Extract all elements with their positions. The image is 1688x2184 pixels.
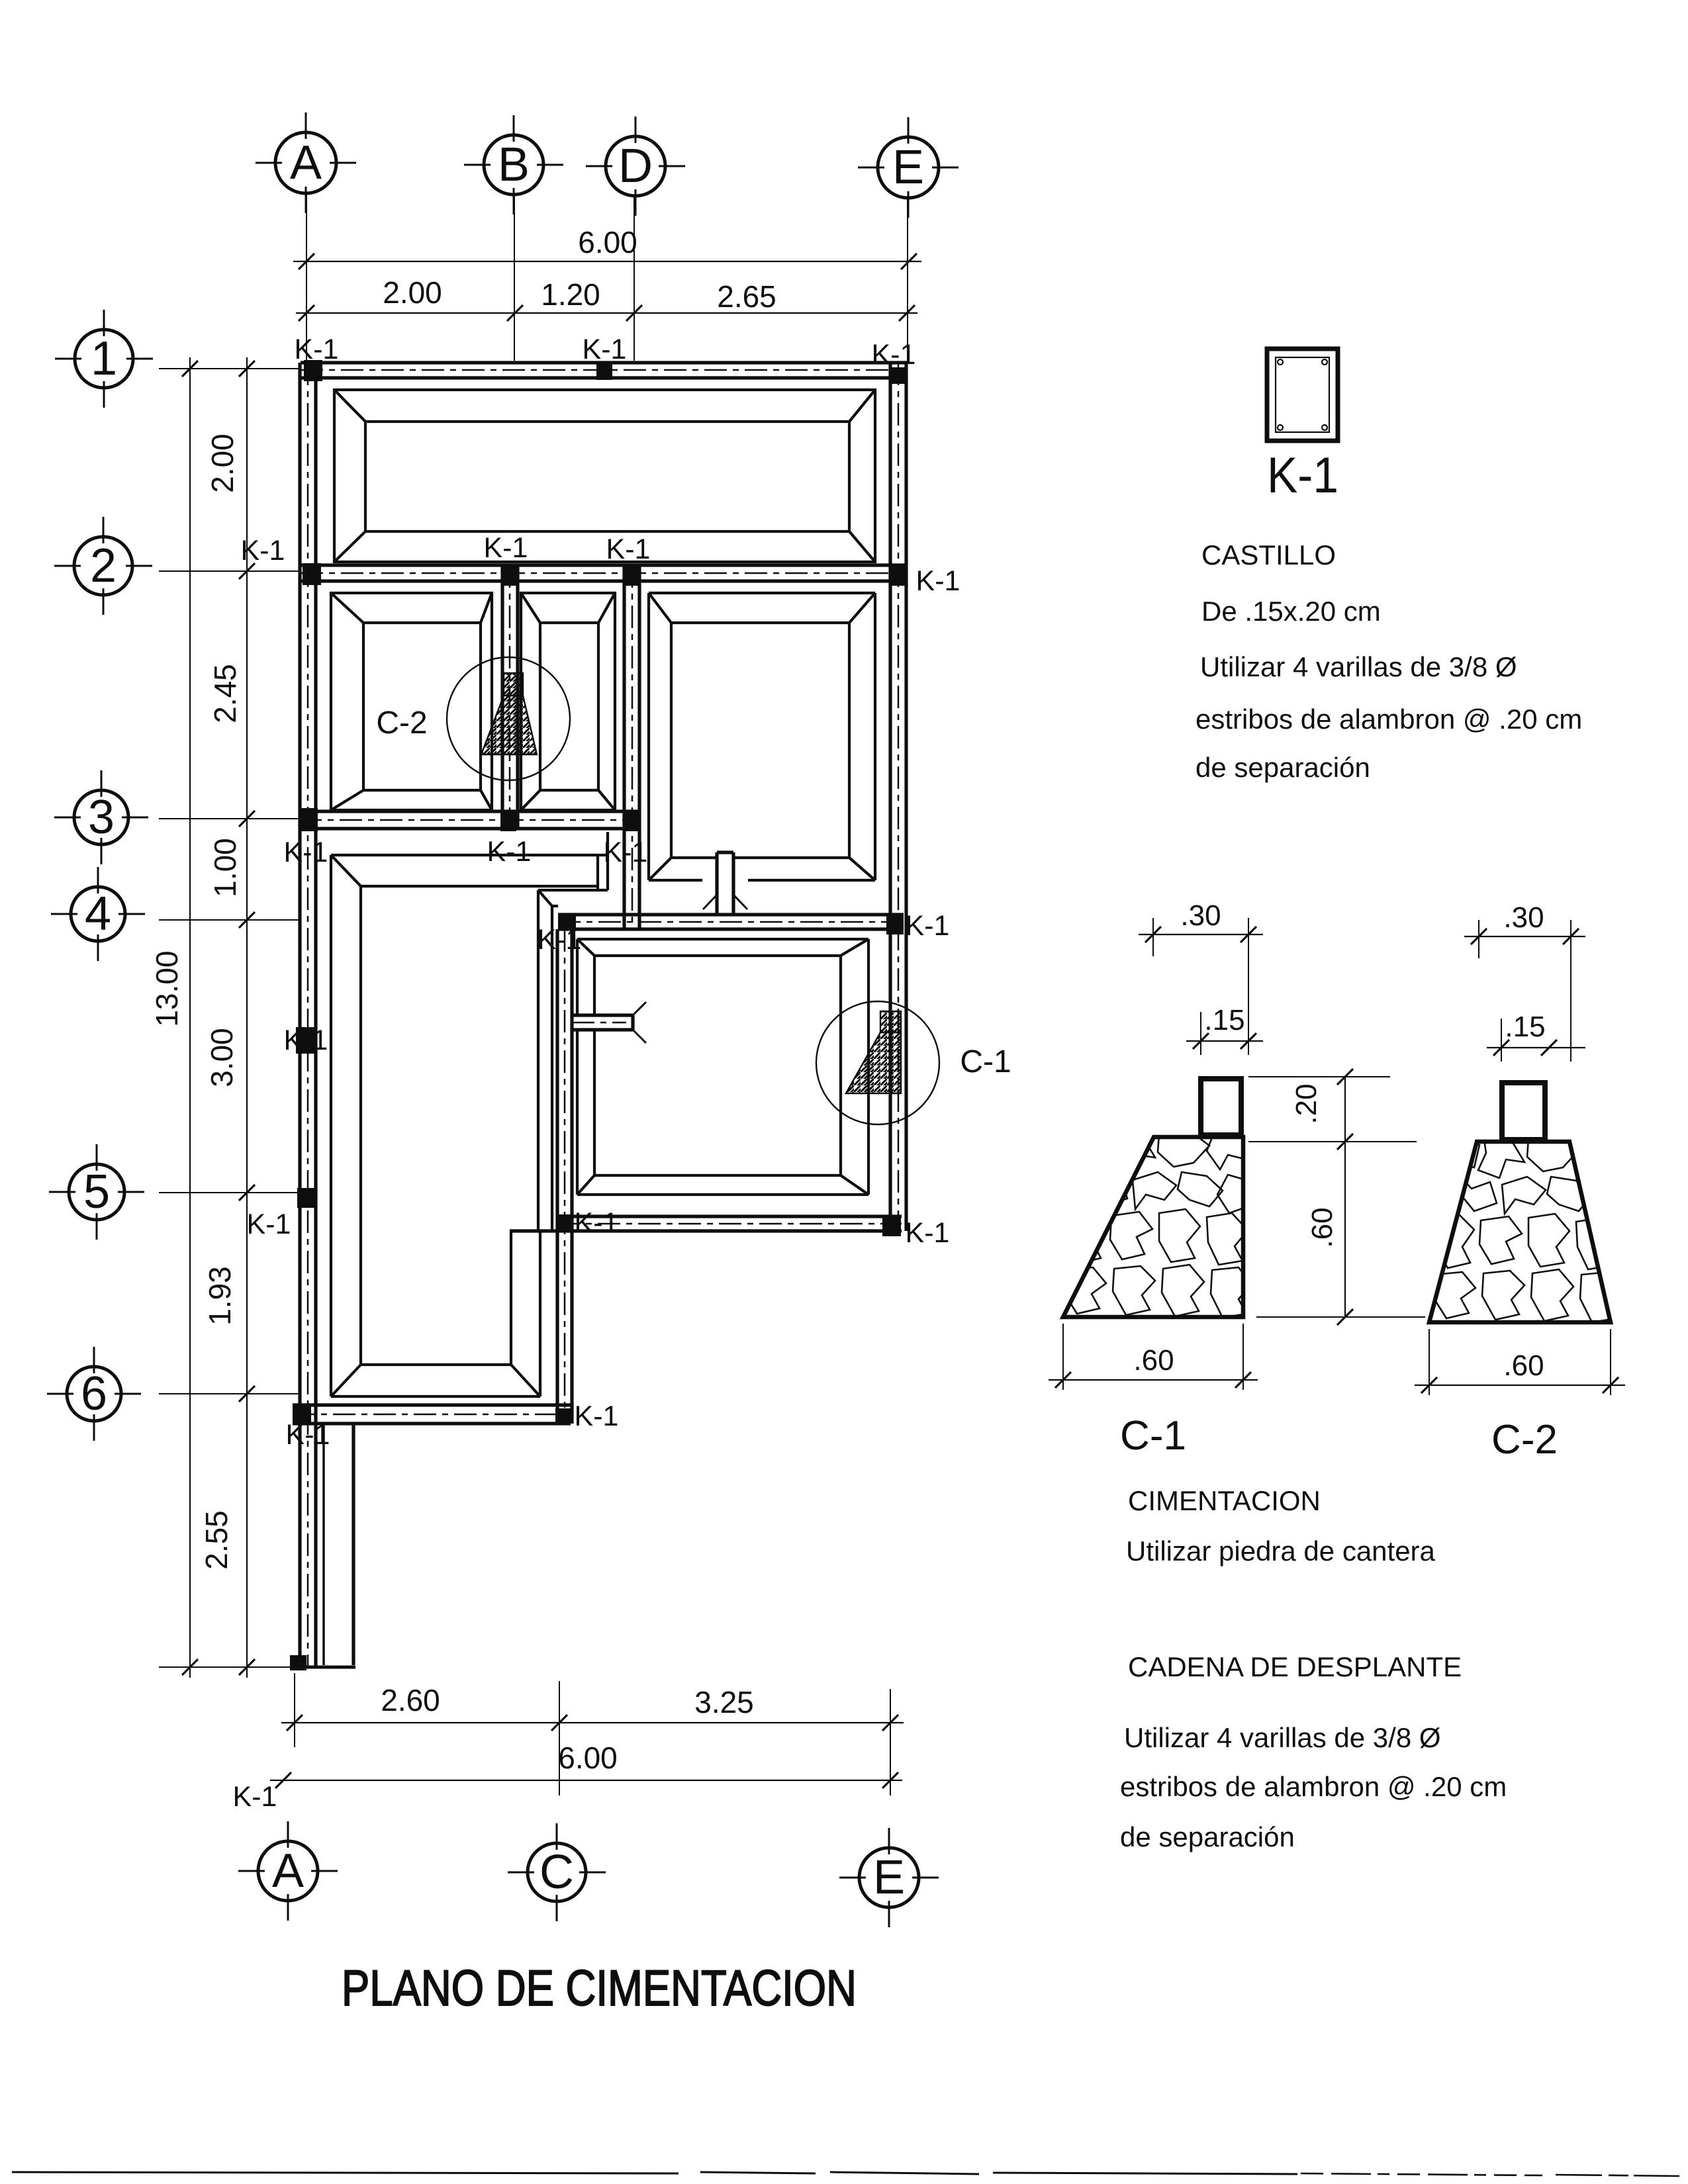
svg-text:.15: .15 <box>1505 1011 1545 1043</box>
svg-text:3.00: 3.00 <box>205 1028 239 1087</box>
svg-text:3.25: 3.25 <box>694 1685 754 1719</box>
svg-text:CADENA DE DESPLANTE: CADENA DE DESPLANTE <box>1128 1651 1462 1682</box>
svg-text:4: 4 <box>85 887 111 940</box>
svg-text:K-1: K-1 <box>606 533 651 565</box>
svg-text:K-1: K-1 <box>872 339 916 371</box>
svg-text:1.00: 1.00 <box>208 838 242 897</box>
svg-text:.60: .60 <box>1503 1349 1544 1382</box>
svg-text:K-1: K-1 <box>284 1024 328 1056</box>
svg-text:A: A <box>272 1844 304 1897</box>
svg-text:C: C <box>539 1846 574 1899</box>
svg-text:2.55: 2.55 <box>199 1510 234 1570</box>
svg-text:5: 5 <box>83 1165 110 1218</box>
svg-text:6.00: 6.00 <box>578 225 637 259</box>
svg-text:2.00: 2.00 <box>205 433 240 493</box>
svg-text:Utilizar 4 varillas de 3/8 Ø: Utilizar 4 varillas de 3/8 Ø <box>1200 651 1517 682</box>
svg-text:.20: .20 <box>1290 1083 1323 1124</box>
svg-text:estribos de alambron @ .20 cm: estribos de alambron @ .20 cm <box>1120 1771 1507 1802</box>
svg-text:K-1: K-1 <box>247 1208 291 1240</box>
svg-text:K-1: K-1 <box>286 1419 330 1451</box>
svg-text:Utilizar piedra de cantera: Utilizar piedra de cantera <box>1126 1535 1436 1567</box>
svg-text:C-1: C-1 <box>1120 1413 1186 1459</box>
svg-text:De .15x.20 cm: De .15x.20 cm <box>1201 596 1381 627</box>
svg-text:K-1: K-1 <box>487 836 532 868</box>
svg-text:.60: .60 <box>1133 1344 1174 1377</box>
svg-text:K-1: K-1 <box>1267 447 1338 504</box>
svg-text:2.45: 2.45 <box>208 664 242 723</box>
svg-text:PLANO DE CIMENTACION: PLANO DE CIMENTACION <box>342 1960 857 2017</box>
svg-text:de separación: de separación <box>1196 752 1370 783</box>
svg-text:.15: .15 <box>1204 1004 1244 1036</box>
svg-text:K-1: K-1 <box>575 1400 619 1432</box>
svg-text:K-1: K-1 <box>241 535 285 567</box>
svg-text:2.65: 2.65 <box>717 279 776 314</box>
svg-text:C-2: C-2 <box>1491 1417 1558 1463</box>
svg-text:6: 6 <box>81 1367 107 1420</box>
svg-text:2: 2 <box>90 539 117 592</box>
svg-text:K-1: K-1 <box>583 334 627 365</box>
svg-text:K-1: K-1 <box>233 1781 277 1813</box>
svg-text:C-1: C-1 <box>960 1044 1011 1079</box>
svg-text:3: 3 <box>88 791 115 844</box>
svg-text:1.93: 1.93 <box>203 1266 237 1326</box>
svg-text:estribos de alambron @ .20 cm: estribos de alambron @ .20 cm <box>1196 704 1582 735</box>
svg-text:2.00: 2.00 <box>383 275 442 310</box>
svg-text:D: D <box>618 140 653 193</box>
svg-text:E: E <box>892 141 924 194</box>
svg-text:K-1: K-1 <box>906 910 950 942</box>
svg-text:K-1: K-1 <box>916 565 961 597</box>
svg-text:1: 1 <box>91 332 117 385</box>
svg-text:K-1: K-1 <box>575 1207 619 1239</box>
svg-text:K-1: K-1 <box>906 1217 950 1249</box>
svg-text:B: B <box>498 138 530 191</box>
svg-text:2.60: 2.60 <box>381 1683 440 1717</box>
svg-text:K-1: K-1 <box>604 837 648 868</box>
svg-text:K-1: K-1 <box>284 837 328 868</box>
svg-text:Utilizar 4 varillas de 3/8 Ø: Utilizar 4 varillas de 3/8 Ø <box>1124 1722 1441 1753</box>
svg-text:C-2: C-2 <box>376 705 427 741</box>
svg-text:.30: .30 <box>1180 899 1221 932</box>
svg-text:CASTILLO: CASTILLO <box>1201 539 1336 570</box>
svg-text:A: A <box>290 136 322 189</box>
svg-text:K-1: K-1 <box>484 532 528 564</box>
svg-text:.60: .60 <box>1306 1207 1338 1248</box>
svg-text:de separación: de separación <box>1120 1821 1295 1852</box>
svg-text:.30: .30 <box>1503 901 1544 934</box>
svg-text:CIMENTACION: CIMENTACION <box>1128 1485 1321 1516</box>
svg-text:1.20: 1.20 <box>541 277 600 312</box>
svg-text:13.00: 13.00 <box>150 950 184 1026</box>
svg-text:K-1: K-1 <box>295 334 339 365</box>
svg-text:6.00: 6.00 <box>558 1741 618 1775</box>
svg-text:E: E <box>873 1851 905 1904</box>
svg-text:K-1: K-1 <box>538 924 582 956</box>
